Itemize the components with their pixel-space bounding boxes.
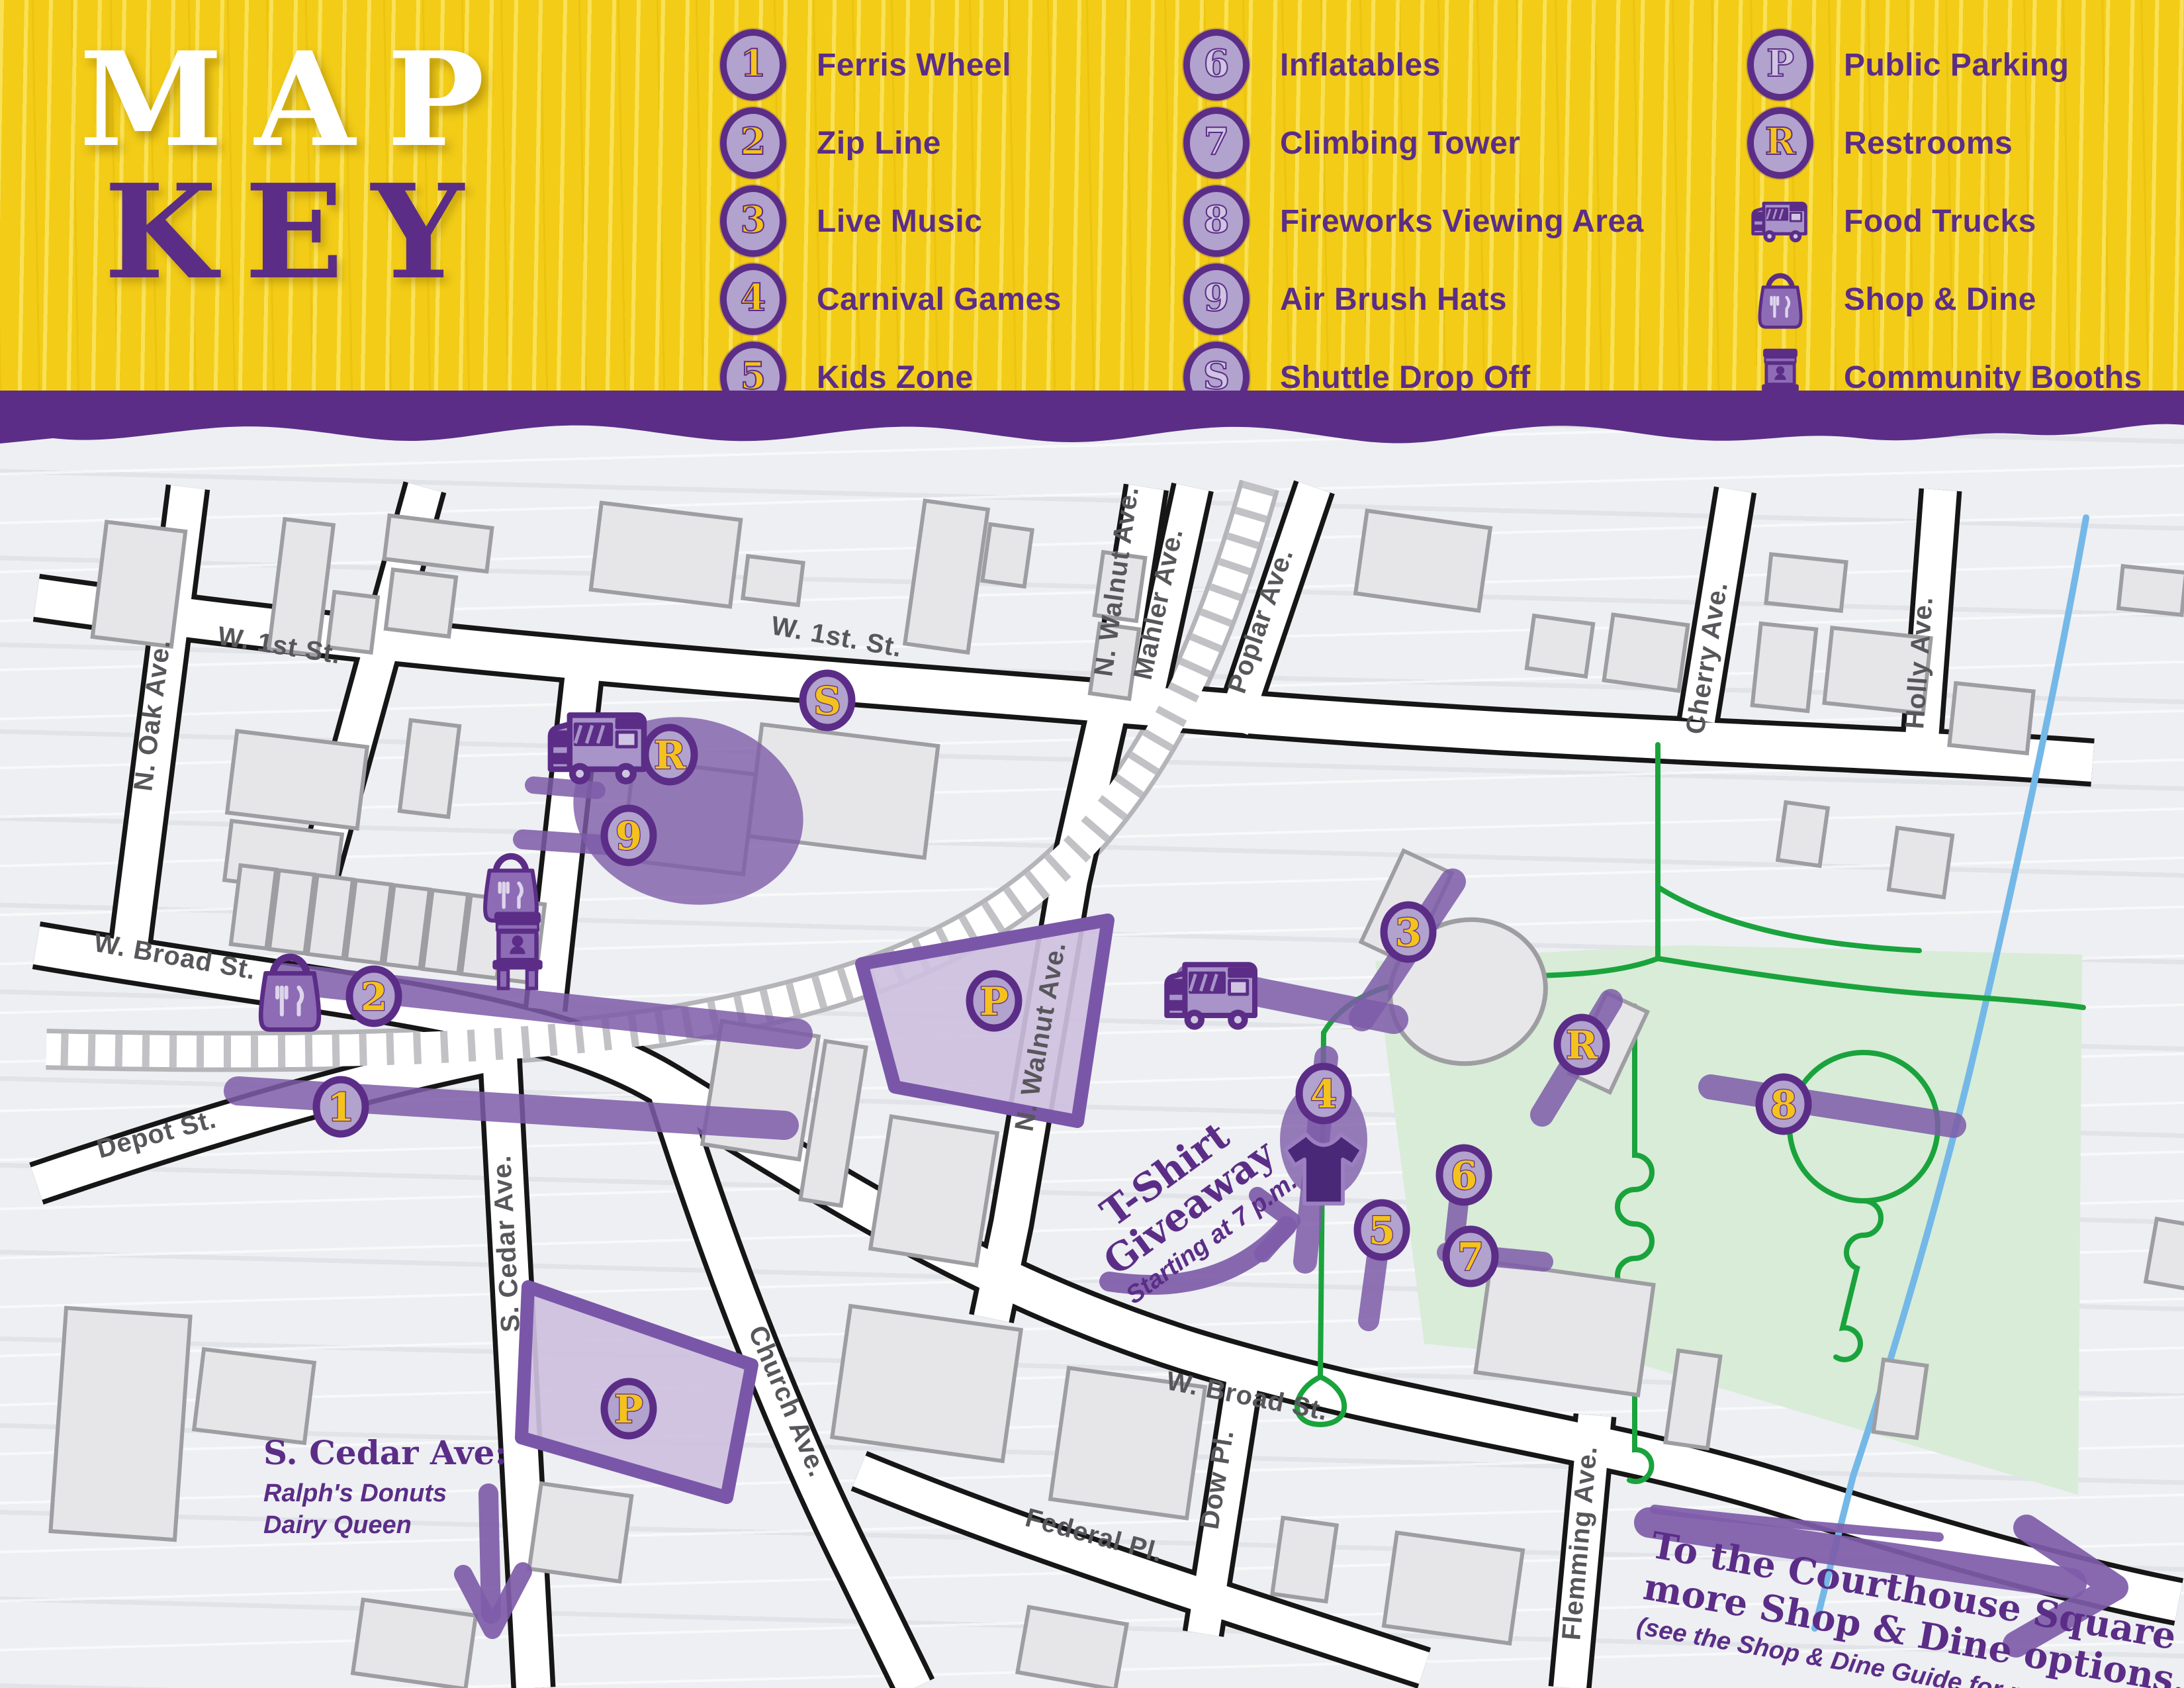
building	[982, 524, 1032, 586]
legend-badge-glyph: 5	[741, 354, 766, 398]
svg-text:3: 3	[1395, 910, 1422, 955]
svg-text:R: R	[1566, 1023, 1598, 1068]
legend-badge-glyph: 4	[741, 276, 766, 320]
building	[353, 1600, 476, 1688]
legend-item-label: Carnival Games	[817, 281, 1062, 318]
building	[386, 569, 456, 636]
legend-item-label: Air Brush Hats	[1280, 281, 1507, 318]
legend-item: 4Carnival Games	[720, 267, 1062, 331]
legend-badge: 2	[720, 107, 786, 179]
legend-badge-glyph: 7	[1204, 120, 1230, 164]
legend-badge-glyph: P	[1766, 42, 1794, 85]
park-path	[1658, 887, 1919, 951]
legend-item: 2Zip Line	[720, 111, 1062, 175]
food-truck-icon	[1747, 189, 1813, 253]
brush-arrow	[488, 1493, 491, 1614]
svg-text:6: 6	[1451, 1153, 1477, 1198]
building	[1752, 624, 1817, 711]
map-marker-9: 9	[604, 808, 653, 863]
legend-item-label: Ferris Wheel	[817, 47, 1011, 83]
legend-item-label: Community Booths	[1844, 359, 2142, 396]
legend-item: Shop & Dine	[1747, 267, 2142, 331]
legend-item: RRestrooms	[1747, 111, 2142, 175]
legend-item-label: Inflatables	[1280, 47, 1441, 83]
building	[400, 720, 459, 817]
legend-badge-glyph: S	[1203, 354, 1230, 398]
building	[50, 1308, 190, 1540]
legend-badge: 6	[1183, 29, 1250, 101]
legend-item: Community Booths	[1747, 346, 2142, 409]
building	[227, 731, 367, 828]
title-key: KEY	[60, 167, 536, 299]
shop-dine-icon	[1747, 267, 1813, 331]
building	[529, 1483, 632, 1581]
map-marker-4: 4	[1299, 1066, 1348, 1121]
map-marker-p: P	[970, 974, 1019, 1028]
svg-text:P: P	[614, 1387, 643, 1432]
legend-item: 8Fireworks Viewing Area	[1183, 189, 1644, 253]
svg-text:S. Cedar Ave:: S. Cedar Ave:	[263, 1433, 507, 1472]
building	[591, 503, 741, 607]
building	[93, 522, 185, 646]
legend-item: 3Live Music	[720, 189, 1062, 253]
building	[1384, 1532, 1523, 1643]
map-marker-3: 3	[1384, 905, 1433, 959]
map-marker-1: 1	[316, 1080, 365, 1134]
community-booths-icon	[1747, 346, 1813, 409]
legend-badge: P	[1747, 29, 1813, 101]
legend-item-label: Kids Zone	[817, 359, 974, 396]
event-street-map-canvas: W. 1st St.W. 1st. St.N. Oak Ave.N. Walnu…	[0, 424, 2184, 1688]
building	[1766, 554, 1846, 611]
building	[1272, 1518, 1336, 1601]
building	[2146, 1219, 2184, 1288]
svg-text:1: 1	[328, 1085, 354, 1130]
legend-item: 7Climbing Tower	[1183, 111, 1644, 175]
legend-item-label: Food Trucks	[1844, 203, 2036, 240]
map-marker-5: 5	[1357, 1203, 1406, 1257]
building	[1527, 616, 1593, 677]
building	[2118, 566, 2184, 615]
legend-badge: S	[1183, 342, 1250, 413]
building	[1949, 683, 2033, 753]
map-marker-6: 6	[1439, 1148, 1488, 1202]
svg-text:Dairy Queen: Dairy Queen	[263, 1511, 412, 1539]
map-marker-2: 2	[349, 969, 398, 1023]
legend-column-1: 1Ferris Wheel 2Zip Line 3Live Music 4Car…	[720, 33, 1062, 409]
building	[743, 556, 803, 605]
building	[1889, 828, 1952, 898]
legend-badge-glyph: 9	[1204, 276, 1230, 320]
legend-item: Food Trucks	[1747, 189, 2142, 253]
map-key-header: MAP KEY 1Ferris Wheel 2Zip Line 3Live Mu…	[0, 0, 2184, 429]
building	[1476, 1262, 1654, 1395]
svg-text:8: 8	[1770, 1082, 1797, 1127]
svg-text:4: 4	[1310, 1072, 1337, 1117]
legend-item: PPublic Parking	[1747, 33, 2142, 97]
building	[1778, 802, 1828, 866]
legend-item: SShuttle Drop Off	[1183, 346, 1644, 409]
legend-item-label: Climbing Tower	[1280, 125, 1520, 162]
svg-text:7: 7	[1457, 1235, 1484, 1280]
svg-text:5: 5	[1369, 1208, 1395, 1253]
legend-badge-glyph: 2	[741, 120, 766, 164]
building	[1017, 1607, 1126, 1688]
svg-text:Ralph's Donuts: Ralph's Donuts	[263, 1479, 447, 1507]
legend-item: 9Air Brush Hats	[1183, 267, 1644, 331]
legend-badge-glyph: 8	[1204, 198, 1230, 242]
building	[194, 1349, 314, 1443]
map-key-poster: MAP KEY 1Ferris Wheel 2Zip Line 3Live Mu…	[0, 0, 2184, 1688]
building	[1604, 615, 1688, 691]
legend-badge-glyph: 3	[741, 198, 766, 242]
legend-item-label: Public Parking	[1844, 47, 2069, 83]
legend-item: 6Inflatables	[1183, 33, 1644, 97]
building	[1874, 1360, 1927, 1438]
legend-column-2: 6Inflatables 7Climbing Tower 8Fireworks …	[1183, 33, 1644, 409]
title-map: MAP	[60, 34, 536, 167]
svg-text:P: P	[979, 979, 1009, 1024]
legend-badge-glyph: R	[1765, 120, 1796, 164]
map-marker-p: P	[604, 1382, 653, 1436]
food-truck-icon	[1167, 964, 1255, 1029]
legend-column-3: PPublic Parking RRestrooms Food Trucks S…	[1747, 33, 2142, 409]
legend-badge: 4	[720, 263, 786, 335]
legend-badge: 7	[1183, 107, 1250, 179]
event-street-map: W. 1st St.W. 1st. St.N. Oak Ave.N. Walnu…	[0, 424, 2184, 1688]
building	[905, 500, 987, 652]
svg-text:S: S	[813, 679, 841, 724]
map-marker-7: 7	[1446, 1229, 1495, 1284]
svg-text:2: 2	[361, 974, 387, 1019]
svg-text:9: 9	[615, 814, 642, 859]
legend-badge: 3	[720, 185, 786, 257]
legend-item-label: Shop & Dine	[1844, 281, 2036, 318]
building	[1355, 511, 1490, 611]
map-marker-8: 8	[1759, 1077, 1808, 1131]
legend-badge: R	[1747, 107, 1813, 179]
legend-badge-glyph: 1	[741, 42, 766, 85]
legend-badge: 8	[1183, 185, 1250, 257]
legend-item-label: Shuttle Drop Off	[1280, 359, 1531, 396]
svg-text:R: R	[654, 733, 686, 778]
legend-item-label: Fireworks Viewing Area	[1280, 203, 1644, 240]
legend-item-label: Live Music	[817, 203, 982, 240]
legend-badge: 1	[720, 29, 786, 101]
building	[870, 1117, 997, 1266]
cedar-note: S. Cedar Ave:Ralph's DonutsDairy Queen	[263, 1433, 507, 1539]
map-marker-s: S	[803, 673, 852, 727]
shop-dine-icon	[485, 857, 537, 921]
legend-badge: 5	[720, 342, 786, 413]
legend-item: 5Kids Zone	[720, 346, 1062, 409]
legend-item-label: Zip Line	[817, 125, 941, 162]
legend-badge-glyph: 6	[1204, 42, 1230, 85]
poster-title: MAP KEY	[60, 34, 536, 299]
map-marker-r: R	[645, 727, 694, 782]
legend-item: 1Ferris Wheel	[720, 33, 1062, 97]
building	[832, 1306, 1021, 1461]
map-marker-r: R	[1557, 1017, 1606, 1072]
legend-badge: 9	[1183, 263, 1250, 335]
legend-item-label: Restrooms	[1844, 125, 2013, 162]
